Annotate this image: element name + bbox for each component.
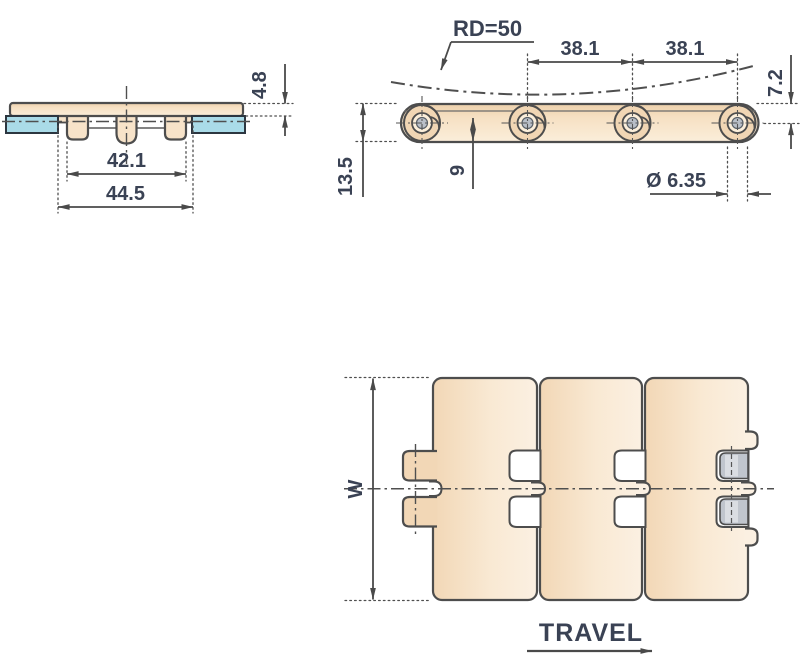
- hinge-slot: [510, 497, 541, 528]
- dim-4-8-label: 4.8: [249, 71, 271, 99]
- dim-6-35-label: Ø 6.35: [646, 170, 706, 192]
- dim-44-5-label: 44.5: [106, 183, 145, 205]
- wear-strip-left: [6, 116, 58, 133]
- dim-9-label: 9: [447, 165, 469, 176]
- hinge-slot: [510, 451, 541, 482]
- technical-drawing: 4.8 42.1 44.5 RD=50: [0, 0, 800, 655]
- travel-label: TRAVEL: [539, 619, 643, 647]
- drawing-canvas: 4.8 42.1 44.5 RD=50: [0, 0, 800, 655]
- dim-38-1-right-label: 38.1: [666, 38, 705, 60]
- dim-42-1-label: 42.1: [107, 150, 146, 172]
- dim-38-1-left-label: 38.1: [561, 38, 600, 60]
- hinge-slot: [615, 497, 646, 528]
- knuckle-bump-bottom: [745, 529, 758, 546]
- knuckle-bump-top: [745, 432, 758, 450]
- dim-7-2-label: 7.2: [765, 69, 787, 97]
- rd-50-label: RD=50: [453, 16, 522, 41]
- wear-strip-right: [192, 116, 245, 133]
- chain-side-body: [401, 104, 759, 142]
- travel-direction: TRAVEL: [527, 619, 652, 651]
- dim-13-5-label: 13.5: [335, 157, 357, 196]
- hinge-slot: [615, 451, 646, 482]
- dim-w-label: W: [345, 479, 367, 498]
